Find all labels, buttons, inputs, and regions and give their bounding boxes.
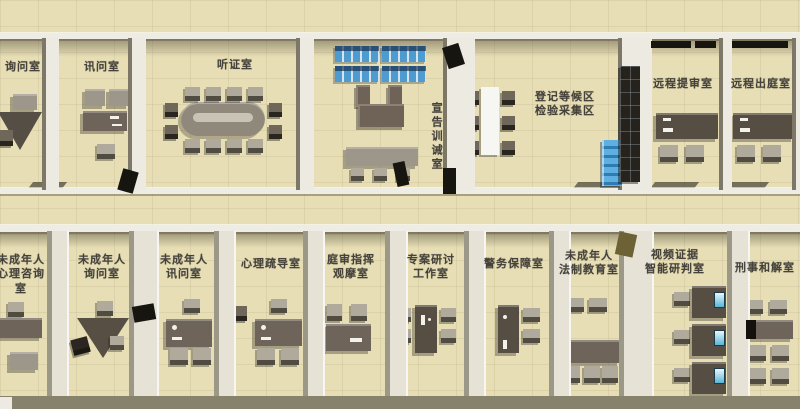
chair	[749, 368, 766, 384]
monitor-screen	[714, 330, 725, 346]
hearing-desk	[733, 113, 794, 139]
room-label: 警务保障室	[478, 257, 550, 271]
chair	[502, 91, 515, 105]
chair	[193, 348, 211, 365]
room-label: 宣告训诫室	[430, 96, 442, 178]
chair	[502, 141, 515, 155]
chair	[674, 368, 690, 382]
chair	[441, 308, 456, 322]
chair	[770, 300, 787, 314]
monitor-screen	[714, 292, 725, 308]
chair	[737, 145, 755, 162]
chair	[185, 87, 200, 101]
room-label: 登记等候区 检验采集区	[516, 90, 614, 119]
chair	[327, 304, 342, 321]
glass-partition	[620, 66, 640, 182]
chair	[523, 329, 540, 343]
ceiling-beam	[732, 41, 788, 48]
chair	[584, 366, 600, 383]
ceiling-beam	[651, 41, 691, 48]
desk-mark	[110, 116, 119, 119]
chair	[0, 130, 13, 146]
chair	[110, 336, 124, 350]
room-label: 未成年人 心理咨询室	[0, 253, 50, 296]
chair	[674, 330, 690, 344]
desk-mark	[350, 338, 362, 342]
chair	[206, 139, 221, 153]
chair	[271, 299, 287, 313]
door	[443, 168, 456, 194]
desk-mark	[428, 318, 431, 321]
wall	[719, 38, 732, 190]
chair	[660, 145, 678, 162]
desk-mark	[112, 124, 122, 126]
chair	[97, 301, 113, 316]
room-label: 未成年人 法制教育室	[554, 249, 624, 278]
chair	[351, 168, 364, 181]
desk	[10, 352, 38, 370]
conference-table-center	[193, 113, 253, 122]
desk	[85, 89, 105, 106]
chair	[589, 298, 607, 312]
chair	[8, 302, 24, 317]
chair	[170, 348, 188, 365]
bottom-left-wall-corner	[0, 397, 12, 409]
chair	[257, 348, 275, 365]
room-label: 视频证据 智能研判室	[641, 248, 709, 277]
chair	[248, 139, 263, 153]
chair	[502, 116, 515, 130]
desk-mark	[172, 337, 182, 340]
chair	[227, 87, 242, 101]
interrogation-desk	[166, 319, 212, 347]
chair	[269, 125, 282, 139]
monitor-screen	[714, 368, 725, 384]
ceiling-beam	[695, 41, 716, 48]
chair	[351, 304, 367, 321]
desk-mark	[663, 118, 671, 121]
desk-mark	[740, 128, 750, 132]
chair	[227, 139, 242, 153]
meeting-table	[415, 305, 437, 353]
desk-mark	[663, 128, 673, 132]
room-label: 远程提审室	[646, 77, 720, 91]
desk	[0, 318, 42, 338]
desk-mark	[421, 315, 425, 325]
table-end	[746, 320, 756, 339]
wall	[128, 38, 146, 190]
room-label: 听证室	[205, 58, 265, 72]
wall-top	[0, 33, 800, 39]
wall	[464, 231, 486, 396]
chair	[184, 299, 200, 313]
audience-seating	[335, 46, 379, 62]
wall	[214, 231, 236, 396]
desk	[255, 319, 302, 346]
long-table	[346, 147, 418, 166]
hearing-desk	[656, 113, 718, 139]
chair	[749, 345, 766, 361]
chair	[97, 144, 115, 159]
wall	[296, 38, 314, 190]
room-label: 讯问室	[78, 60, 126, 74]
desk-mark	[503, 315, 507, 319]
floor-plan: 询问室 讯问室 听证室 宣告训诫室 登记等候区 检验采集区	[0, 0, 800, 409]
chair	[674, 292, 690, 306]
room-label: 远程出庭室	[724, 77, 798, 91]
chair	[269, 103, 282, 117]
chair	[165, 103, 178, 117]
evidence-cabinet	[602, 140, 622, 186]
audience-seating	[335, 66, 379, 82]
desk-mark	[740, 118, 748, 121]
chair	[763, 145, 781, 162]
room-label: 庭审指挥 观摩室	[320, 253, 382, 282]
podium-post	[356, 85, 370, 106]
wall	[47, 231, 69, 396]
chair	[772, 368, 789, 384]
room-label: 刑事和解室	[730, 261, 800, 275]
room-label: 询问室	[0, 60, 46, 74]
room-label: 心理疏导室	[236, 257, 306, 271]
desk-mark	[261, 337, 271, 340]
control-desk	[326, 324, 371, 351]
chair	[281, 348, 299, 365]
bottom-edge-band	[0, 396, 800, 409]
podium-post	[388, 85, 402, 106]
room-label: 未成年人 讯问室	[154, 253, 214, 282]
chair	[523, 308, 540, 322]
desk-mark	[172, 325, 177, 330]
desk-mark	[503, 340, 507, 349]
room-label: 未成年人 询问室	[72, 253, 132, 282]
desk-mark	[261, 325, 266, 330]
wall	[792, 38, 800, 190]
interrogation-desk	[83, 111, 127, 131]
room-label: 专案研讨 工作室	[400, 253, 462, 282]
chair	[165, 125, 178, 139]
chair	[248, 87, 263, 101]
audience-seating	[382, 46, 426, 62]
chair	[206, 87, 221, 101]
chair	[441, 329, 456, 343]
chair	[374, 168, 387, 181]
wall	[727, 231, 750, 396]
desk	[13, 94, 37, 110]
desk	[109, 89, 129, 106]
chair	[686, 145, 704, 162]
audience-seating	[382, 66, 426, 82]
chair	[772, 345, 789, 361]
duty-table	[498, 305, 519, 353]
podium-base	[358, 104, 404, 127]
chair	[185, 139, 200, 153]
chair	[602, 366, 618, 383]
reception-counter	[481, 87, 499, 155]
